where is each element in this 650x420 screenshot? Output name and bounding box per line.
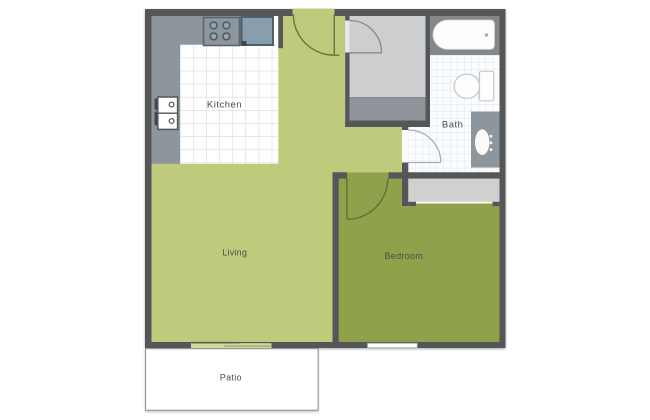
svg-text:Patio: Patio xyxy=(220,372,242,382)
svg-text:Living: Living xyxy=(222,248,247,258)
svg-text:Kitchen: Kitchen xyxy=(207,99,242,110)
svg-text:Bath: Bath xyxy=(442,120,464,131)
svg-text:Bedroom: Bedroom xyxy=(384,251,423,261)
